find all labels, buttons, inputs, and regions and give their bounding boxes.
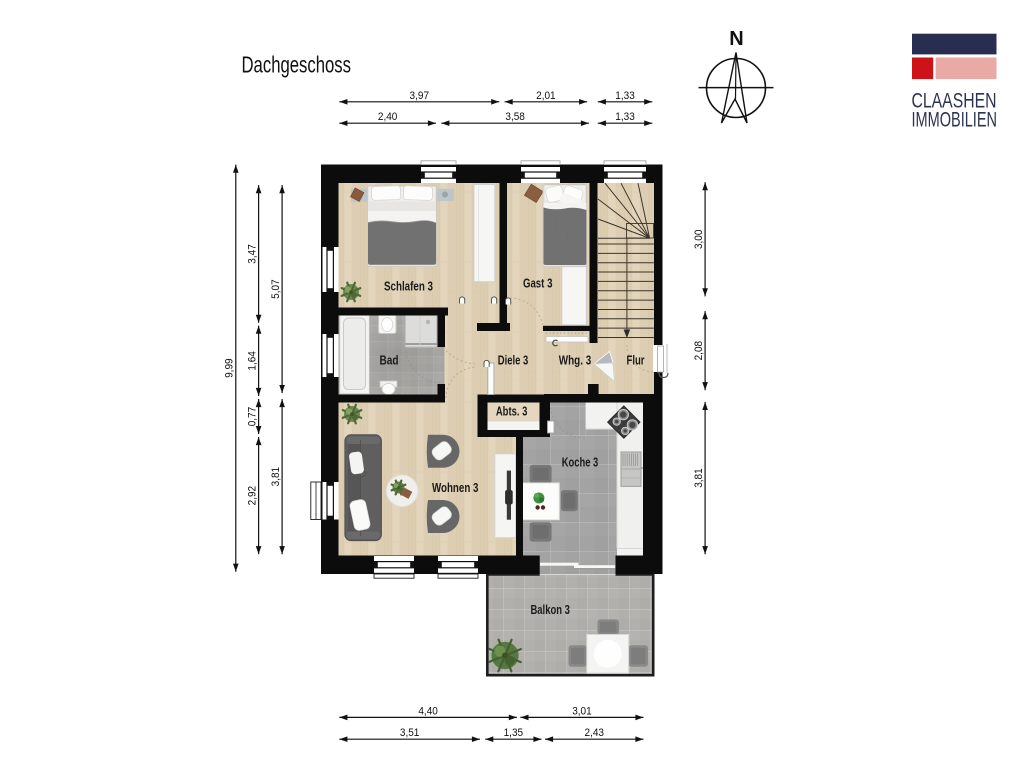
svg-text:2,43: 2,43 xyxy=(585,727,605,739)
svg-text:4,40: 4,40 xyxy=(418,705,438,717)
svg-text:Whg. 3: Whg. 3 xyxy=(559,353,592,368)
svg-text:Balkon 3: Balkon 3 xyxy=(530,602,570,617)
svg-text:N: N xyxy=(729,28,743,50)
svg-text:Wohnen 3: Wohnen 3 xyxy=(432,480,479,495)
svg-text:1,35: 1,35 xyxy=(504,727,524,739)
svg-text:2,92: 2,92 xyxy=(246,486,258,506)
svg-text:3,00: 3,00 xyxy=(693,230,705,250)
svg-text:2,08: 2,08 xyxy=(693,341,705,361)
svg-text:5,07: 5,07 xyxy=(270,279,282,299)
svg-text:Schlafen 3: Schlafen 3 xyxy=(384,279,433,294)
svg-text:Abts. 3: Abts. 3 xyxy=(496,404,528,419)
svg-text:3,97: 3,97 xyxy=(410,90,430,102)
svg-text:IMMOBILIEN: IMMOBILIEN xyxy=(912,107,998,131)
svg-text:Gast 3: Gast 3 xyxy=(523,276,553,291)
svg-text:3,81: 3,81 xyxy=(270,467,282,487)
svg-text:Dachgeschoss: Dachgeschoss xyxy=(242,52,352,78)
svg-text:3,01: 3,01 xyxy=(572,705,592,717)
svg-text:3,58: 3,58 xyxy=(505,111,525,123)
svg-text:3,47: 3,47 xyxy=(246,244,258,264)
svg-text:1,33: 1,33 xyxy=(615,90,635,102)
svg-text:0,77: 0,77 xyxy=(246,407,258,427)
svg-text:Flur: Flur xyxy=(627,353,645,368)
svg-text:9,99: 9,99 xyxy=(224,358,236,378)
svg-text:3,81: 3,81 xyxy=(693,468,705,488)
svg-text:1,33: 1,33 xyxy=(615,111,635,123)
svg-text:2,40: 2,40 xyxy=(378,111,398,123)
svg-text:Diele 3: Diele 3 xyxy=(498,353,529,368)
svg-text:3,51: 3,51 xyxy=(400,727,420,739)
svg-text:2,01: 2,01 xyxy=(536,90,556,102)
svg-text:Koche 3: Koche 3 xyxy=(562,455,599,470)
svg-text:Bad: Bad xyxy=(380,353,399,368)
svg-text:1,64: 1,64 xyxy=(246,351,258,371)
